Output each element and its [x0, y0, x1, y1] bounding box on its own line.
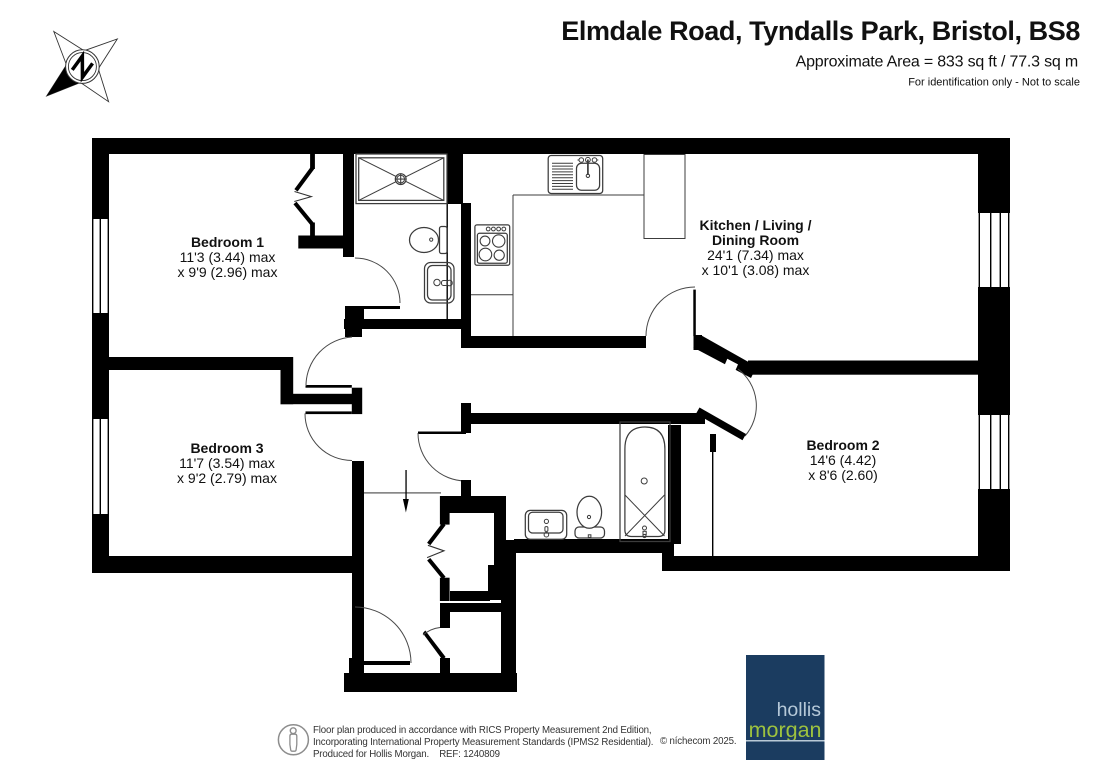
- svg-text:Bedroom 2: Bedroom 2: [806, 437, 879, 453]
- svg-text:Incorporating International Pr: Incorporating International Property Mea…: [313, 737, 653, 748]
- svg-text:Approximate Area = 833 sq ft /: Approximate Area = 833 sq ft / 77.3 sq m: [796, 54, 1078, 71]
- svg-text:11'3 (3.44) max: 11'3 (3.44) max: [180, 249, 276, 265]
- svg-text:Dining Room: Dining Room: [712, 232, 799, 248]
- svg-text:morgan: morgan: [749, 718, 822, 742]
- svg-text:Elmdale Road, Tyndalls Park, B: Elmdale Road, Tyndalls Park, Bristol, BS…: [561, 16, 1080, 46]
- svg-text:x 10'1 (3.08) max: x 10'1 (3.08) max: [702, 262, 810, 278]
- svg-text:Bedroom 1: Bedroom 1: [191, 234, 264, 250]
- svg-text:x 9'2 (2.79) max: x 9'2 (2.79) max: [177, 470, 277, 486]
- svg-text:For identification only - Not: For identification only - Not to scale: [908, 77, 1080, 89]
- svg-text:x 8'6 (2.60): x 8'6 (2.60): [808, 467, 878, 483]
- svg-text:© níchecom 2025.: © níchecom 2025.: [660, 736, 736, 747]
- svg-text:14'6 (4.42): 14'6 (4.42): [810, 452, 877, 468]
- svg-text:Floor plan produced in accorda: Floor plan produced in accordance with R…: [313, 725, 651, 736]
- svg-text:Produced for Hollis Morgan.: Produced for Hollis Morgan. REF: 1240809: [313, 749, 500, 760]
- svg-text:Bedroom 3: Bedroom 3: [190, 440, 263, 456]
- svg-text:Kitchen / Living /: Kitchen / Living /: [699, 217, 811, 233]
- svg-text:11'7 (3.54) max: 11'7 (3.54) max: [179, 455, 275, 471]
- svg-text:x 9'9 (2.96) max: x 9'9 (2.96) max: [178, 264, 278, 280]
- svg-text:24'1 (7.34) max: 24'1 (7.34) max: [707, 247, 804, 263]
